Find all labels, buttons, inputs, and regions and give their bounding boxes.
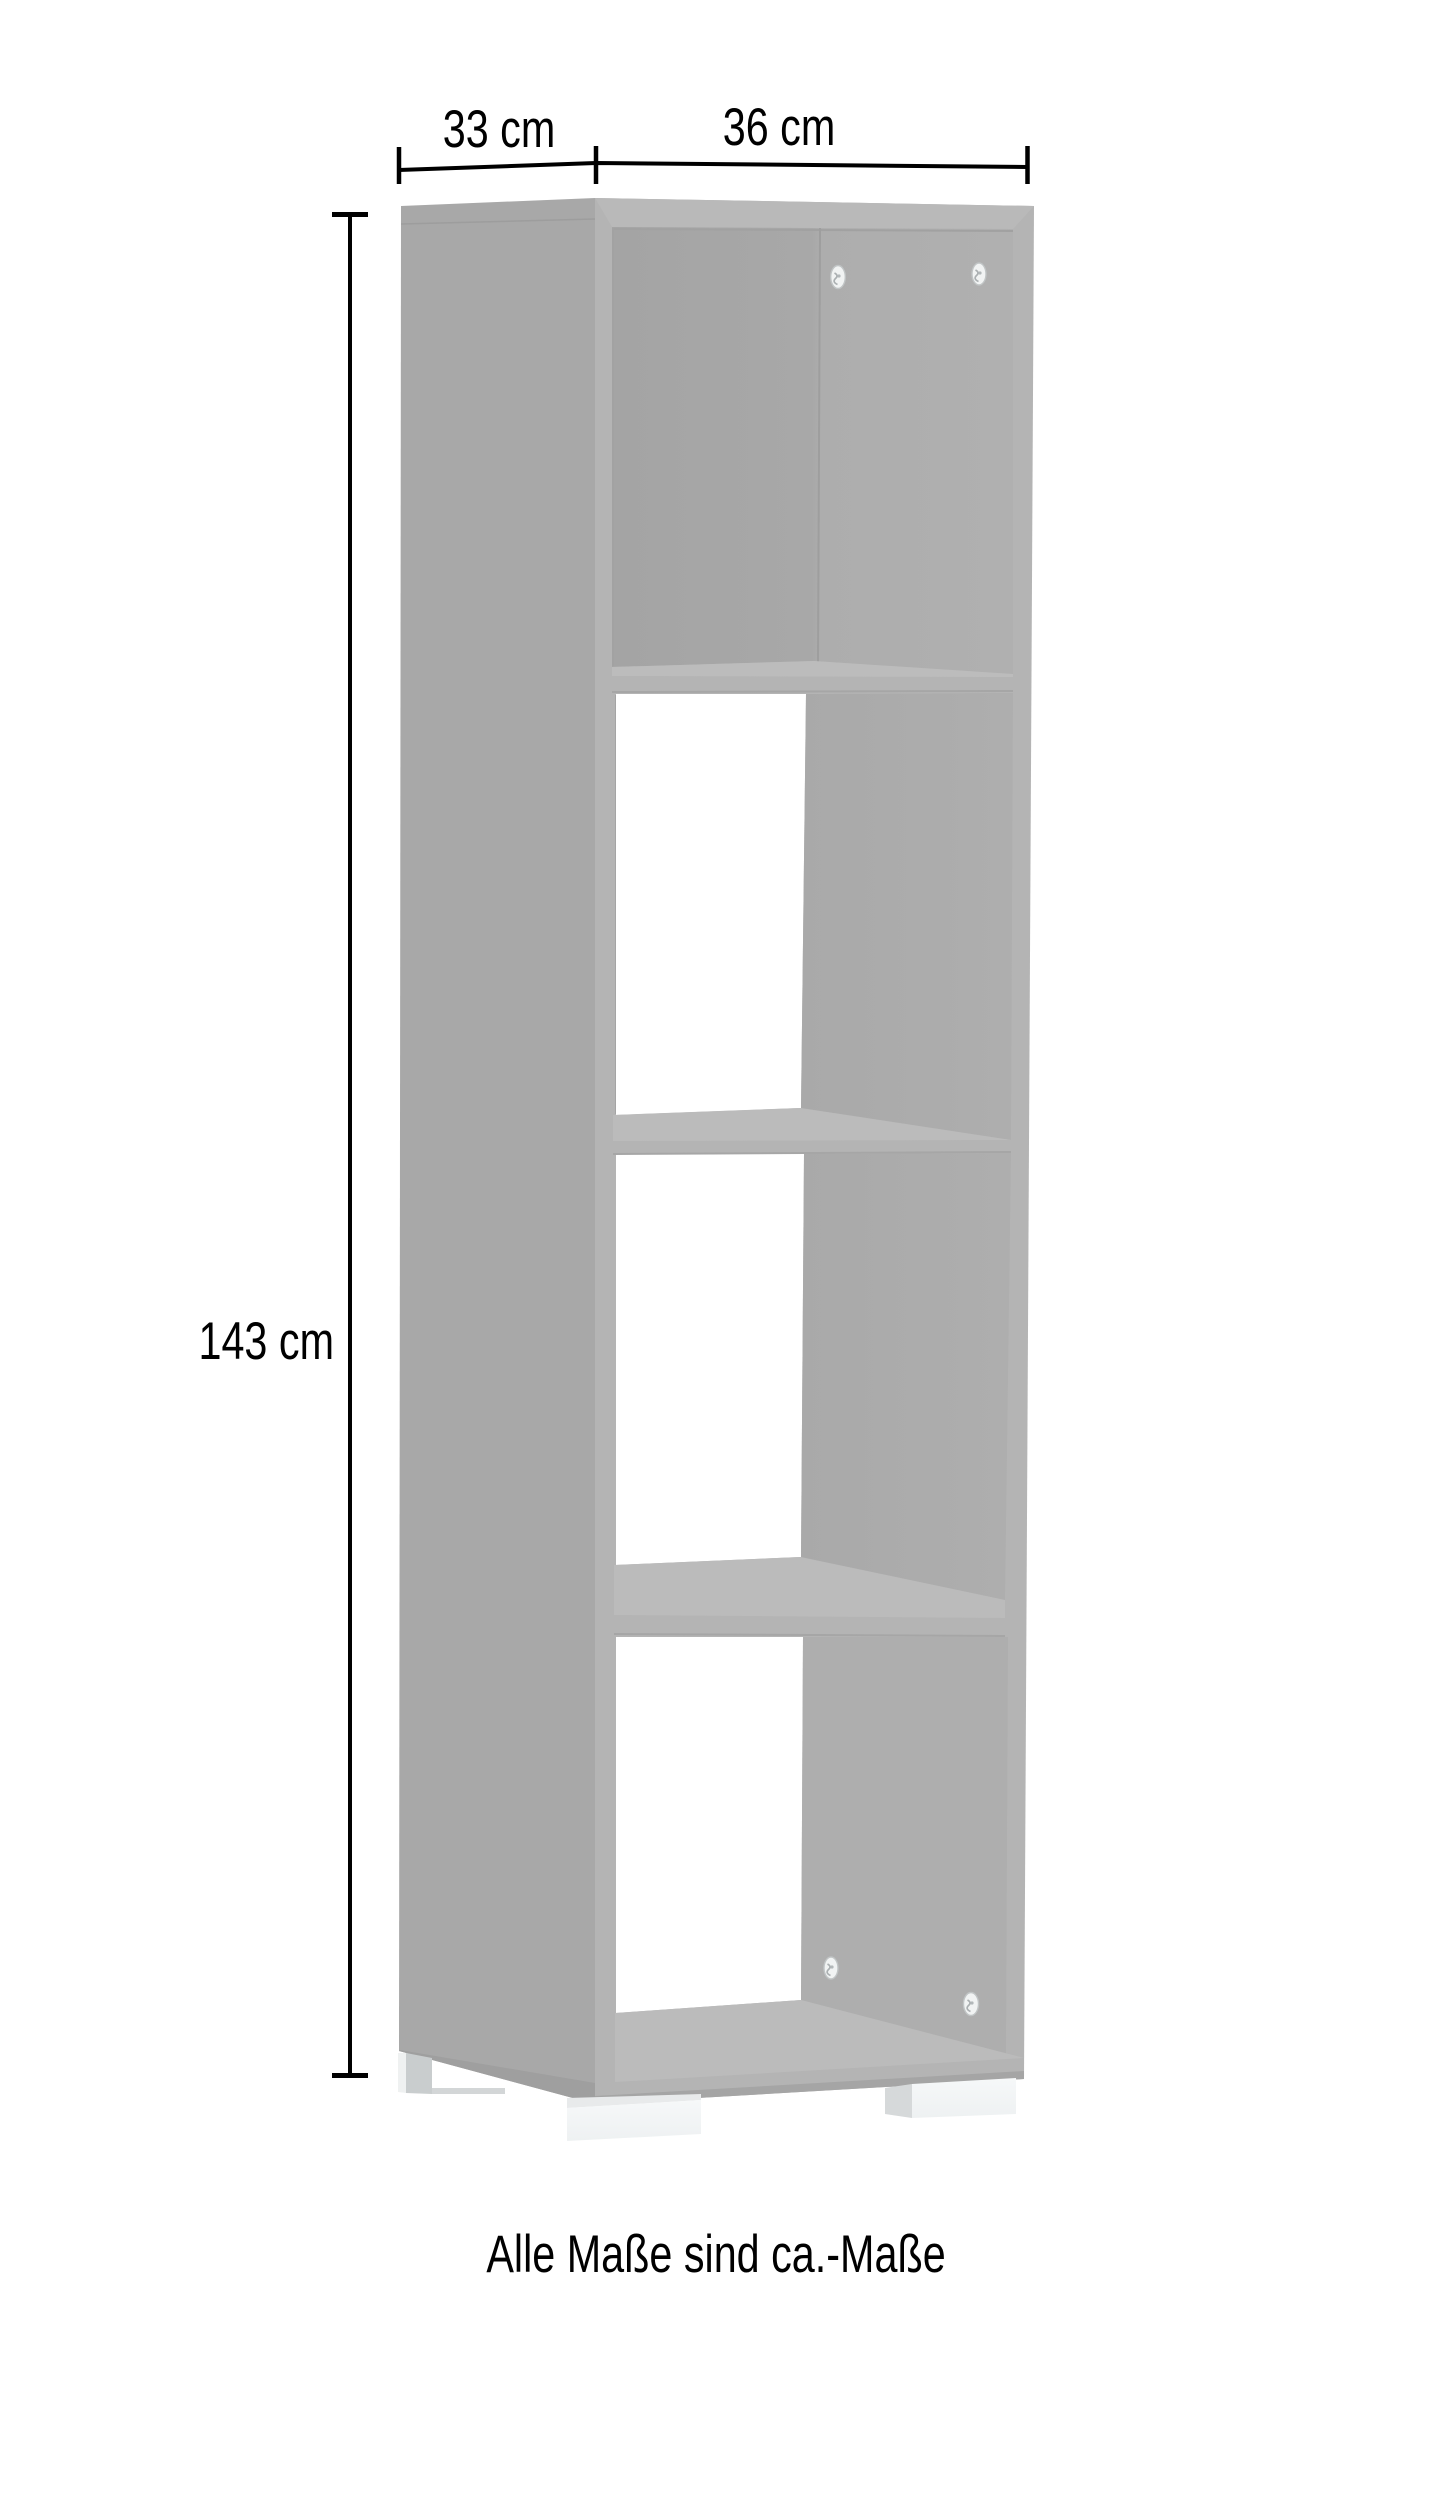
svg-text:36 cm: 36 cm (723, 98, 836, 157)
svg-text:143 cm: 143 cm (198, 1312, 334, 1371)
svg-text:Alle Maße sind ca.-Maße: Alle Maße sind ca.-Maße (486, 2225, 945, 2284)
svg-text:33 cm: 33 cm (443, 100, 556, 159)
